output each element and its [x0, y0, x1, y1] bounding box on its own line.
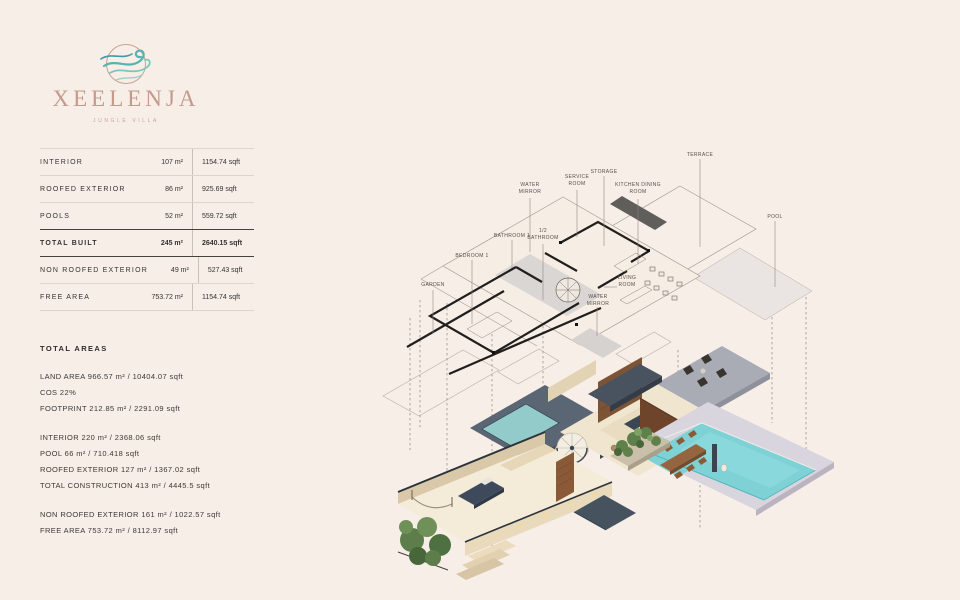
plan-label-storage: STORAGE: [591, 169, 618, 176]
total-areas-section: TOTAL AREAS LAND AREA 966.57 m² / 10404.…: [40, 344, 290, 552]
floorplan-and-model-art: [375, 70, 885, 598]
total-areas-line: FREE AREA 753.72 m² / 8112.97 sqft: [40, 523, 290, 539]
plan-label-garden: GARDEN: [421, 282, 445, 289]
total-areas-line: ROOFED EXTERIOR 127 m² / 1367.02 sqft: [40, 462, 290, 478]
row-m2: 52 m²: [137, 213, 183, 220]
total-areas-heading: TOTAL AREAS: [40, 344, 290, 353]
row-m2: 753.72 m²: [137, 294, 183, 301]
plan-label-water-mirror: WATER MIRROR: [513, 182, 547, 195]
plan-label-kitchen-dining: KITCHEN DINING ROOM: [612, 182, 664, 195]
vase: [721, 464, 727, 472]
total-areas-line: INTERIOR 220 m² / 2368.06 sqft: [40, 430, 290, 446]
plan-label-water-mirror-2: WATER MIRROR: [581, 294, 615, 307]
total-areas-line: NON ROOFED EXTERIOR 161 m² / 1022.57 sqf…: [40, 507, 290, 523]
brand-subtitle: JUNGLE VILLA: [40, 118, 212, 124]
brand-name: XEELENJA: [40, 86, 212, 112]
total-areas-line: COS 22%: [40, 385, 290, 401]
plan-label-half-bathroom: 1/2 BATHROOM: [523, 228, 563, 241]
table-row-total-built: TOTAL BUILT 245 m² 2640.15 sqft: [40, 229, 254, 257]
plan-spiral-stair: [556, 278, 580, 302]
plan-label-service-room: SERVICE ROOM: [560, 174, 594, 187]
row-m2: 49 m²: [148, 267, 189, 274]
total-areas-line: POOL 66 m² / 710.418 sqft: [40, 446, 290, 462]
isometric-drawing: WATER MIRROR SERVICE ROOM STORAGE KITCHE…: [375, 70, 885, 598]
total-areas-line: LAND AREA 966.57 m² / 10404.07 sqft: [40, 369, 290, 385]
row-sqft: 559.72 sqft: [192, 203, 254, 229]
row-m2: 86 m²: [137, 186, 183, 193]
3d-model: [398, 346, 834, 580]
total-areas-line: TOTAL CONSTRUCTION 413 m² / 4445.5 sqft: [40, 478, 290, 494]
table-row: NON ROOFED EXTERIOR 49 m² 527.43 sqft: [40, 257, 254, 284]
table-row: FREE AREA 753.72 m² 1154.74 sqft: [40, 284, 254, 311]
row-label: POOLS: [40, 213, 137, 220]
plan-label-terrace: TERRACE: [687, 152, 713, 159]
row-label: FREE AREA: [40, 294, 137, 301]
row-label: TOTAL BUILT: [40, 240, 137, 247]
row-m2: 245 m²: [137, 240, 183, 247]
total-areas-group: LAND AREA 966.57 m² / 10404.07 sqft COS …: [40, 369, 290, 417]
row-label: INTERIOR: [40, 159, 137, 166]
total-areas-line: FOOTPRINT 212.85 m² / 2291.09 sqft: [40, 401, 290, 417]
plan-label-bedroom1: BEDROOM 1: [455, 253, 488, 260]
row-sqft: 527.43 sqft: [198, 257, 254, 283]
plan-label-living-room: LIVING ROOM: [614, 275, 640, 288]
row-sqft: 925.69 sqft: [192, 176, 254, 202]
table-row: POOLS 52 m² 559.72 sqft: [40, 203, 254, 230]
total-areas-group: INTERIOR 220 m² / 2368.06 sqft POOL 66 m…: [40, 430, 290, 494]
area-summary-table: INTERIOR 107 m² 1154.74 sqft ROOFED EXTE…: [40, 148, 254, 311]
row-sqft: 1154.74 sqft: [192, 284, 254, 310]
floor-plan: [407, 159, 812, 374]
plan-dark-roof-slab: [610, 196, 667, 230]
plan-pool-area: [693, 248, 812, 320]
plan-label-pool: POOL: [767, 214, 782, 221]
row-sqft: 2640.15 sqft: [192, 230, 254, 256]
row-label: ROOFED EXTERIOR: [40, 186, 137, 193]
villa-spec-sheet: XEELENJA JUNGLE VILLA INTERIOR 107 m² 11…: [0, 0, 960, 600]
row-m2: 107 m²: [137, 159, 183, 166]
row-label: NON ROOFED EXTERIOR: [40, 267, 148, 274]
table-row: ROOFED EXTERIOR 86 m² 925.69 sqft: [40, 176, 254, 203]
outdoor-shower-post: [712, 444, 717, 472]
total-areas-group: NON ROOFED EXTERIOR 161 m² / 1022.57 sqf…: [40, 507, 290, 539]
row-sqft: 1154.74 sqft: [192, 149, 254, 175]
table-row: INTERIOR 107 m² 1154.74 sqft: [40, 148, 254, 176]
